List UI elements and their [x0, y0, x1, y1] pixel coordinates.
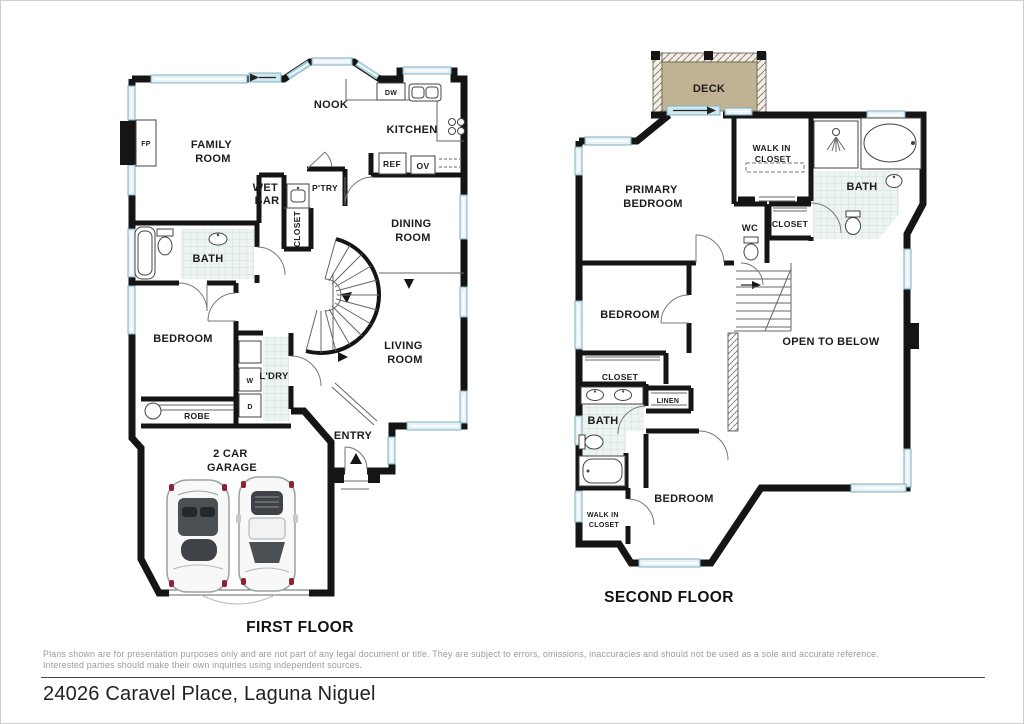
car-coupe-icon	[236, 477, 298, 591]
room-label-garage: 2 CAR GARAGE	[207, 448, 257, 474]
deck: DECK	[651, 51, 766, 115]
fireplace: FP	[136, 120, 156, 166]
room-label-living-room: LIVING ROOM	[384, 340, 426, 366]
room-label-family-room: FAMILY ROOM	[191, 139, 235, 165]
laundry-fixtures: W D	[145, 341, 261, 419]
toilet-icon	[846, 211, 860, 217]
label-line: LIVING	[384, 340, 422, 352]
room-label-walk-in-closet-primary: WALK IN CLOSET	[753, 143, 794, 164]
wardrobe-rod	[746, 163, 804, 172]
floorplan-page: FP DW REF OV	[0, 0, 1024, 724]
first-floor-title: FIRST FLOOR	[246, 619, 354, 636]
toilet-icon	[579, 435, 585, 449]
label-line: ROOM	[395, 232, 430, 244]
room-label-entry: ENTRY	[334, 430, 373, 442]
room-label-linen: LINEN	[657, 398, 680, 405]
room-label-closet: CLOSET	[292, 210, 302, 247]
room-label-walk-in-closet-back: WALK IN CLOSET	[587, 512, 621, 529]
room-label-bath-hall: BATH	[588, 415, 619, 427]
label-line: DINING	[391, 218, 431, 230]
floorplan-drawing: FP DW REF OV	[1, 1, 1024, 724]
room-label-kitchen: KITCHEN	[387, 124, 438, 136]
wet-bar-sink-icon	[287, 184, 309, 208]
fireplace-label: FP	[141, 141, 151, 148]
label-line: CLOSET	[589, 522, 620, 529]
toilet-icon	[744, 237, 758, 243]
second-floor-plan: DECK	[575, 51, 923, 606]
second-floor-title: SECOND FLOOR	[604, 589, 734, 606]
room-label-nook: NOOK	[314, 99, 348, 111]
room-label-primary-bedroom: PRIMARY BEDROOM	[623, 184, 683, 210]
room-label-laundry: L'DRY	[259, 371, 289, 382]
first-floor-plan: FP DW REF OV	[120, 58, 467, 636]
label-line: ROOM	[195, 153, 230, 165]
dishwasher-label: DW	[385, 90, 397, 97]
room-label-wc: WC	[742, 223, 758, 234]
label-line: WALK IN	[753, 143, 791, 153]
label-line: FAMILY	[191, 139, 232, 151]
footer-divider	[41, 677, 985, 678]
stairs-second-floor	[734, 263, 791, 331]
label-line: BAR	[255, 195, 280, 207]
door-arcs-second	[602, 203, 841, 525]
label-line: GARAGE	[207, 462, 257, 474]
windows-first-floor	[128, 58, 467, 464]
car-convertible-icon	[167, 480, 229, 592]
room-label-deck: DECK	[693, 83, 725, 95]
label-line: WALK IN	[587, 512, 619, 519]
label-line: WET	[253, 182, 278, 194]
railing-open-to-below	[728, 333, 738, 431]
disclaimer-line-2: Interested parties should make their own…	[43, 660, 985, 671]
room-label-dining-room: DINING ROOM	[391, 218, 435, 244]
toilet-icon	[157, 229, 173, 236]
room-label-open-to-below: OPEN TO BELOW	[782, 336, 880, 348]
wc-fixtures	[744, 237, 758, 260]
label-line: PRIMARY	[625, 184, 678, 196]
property-address: 24026 Caravel Place, Laguna Niguel	[43, 683, 376, 706]
label-line: CLOSET	[755, 154, 792, 164]
room-label-bedroom-back: BEDROOM	[654, 493, 714, 505]
room-label-bedroom-mid: BEDROOM	[600, 309, 660, 321]
disclaimer: Plans shown are for presentation purpose…	[43, 649, 985, 670]
room-label-pantry: P'TRY	[312, 183, 338, 193]
room-label-robe: ROBE	[184, 411, 210, 421]
disclaimer-line-1: Plans shown are for presentation purpose…	[43, 649, 985, 660]
dryer-label: D	[247, 404, 252, 411]
label-line: 2 CAR	[213, 448, 248, 460]
slider-door-nook	[249, 73, 281, 82]
room-label-wet-bar: WET BAR	[253, 182, 282, 207]
refrigerator-label: REF	[383, 159, 401, 169]
oven-label: OV	[417, 161, 430, 171]
room-label-bath-first: BATH	[193, 253, 224, 265]
washer-label: W	[247, 378, 254, 385]
driveway-arc	[201, 595, 275, 604]
room-label-bedroom-first: BEDROOM	[153, 333, 213, 345]
slider-door-deck	[667, 106, 720, 115]
water-heater-icon	[145, 403, 161, 419]
room-label-bath-primary: BATH	[847, 181, 878, 193]
label-line: BEDROOM	[623, 198, 683, 210]
room-label-closet-mid: CLOSET	[602, 372, 639, 382]
room-label-closet-primary: CLOSET	[772, 219, 809, 229]
label-line: ROOM	[387, 354, 422, 366]
